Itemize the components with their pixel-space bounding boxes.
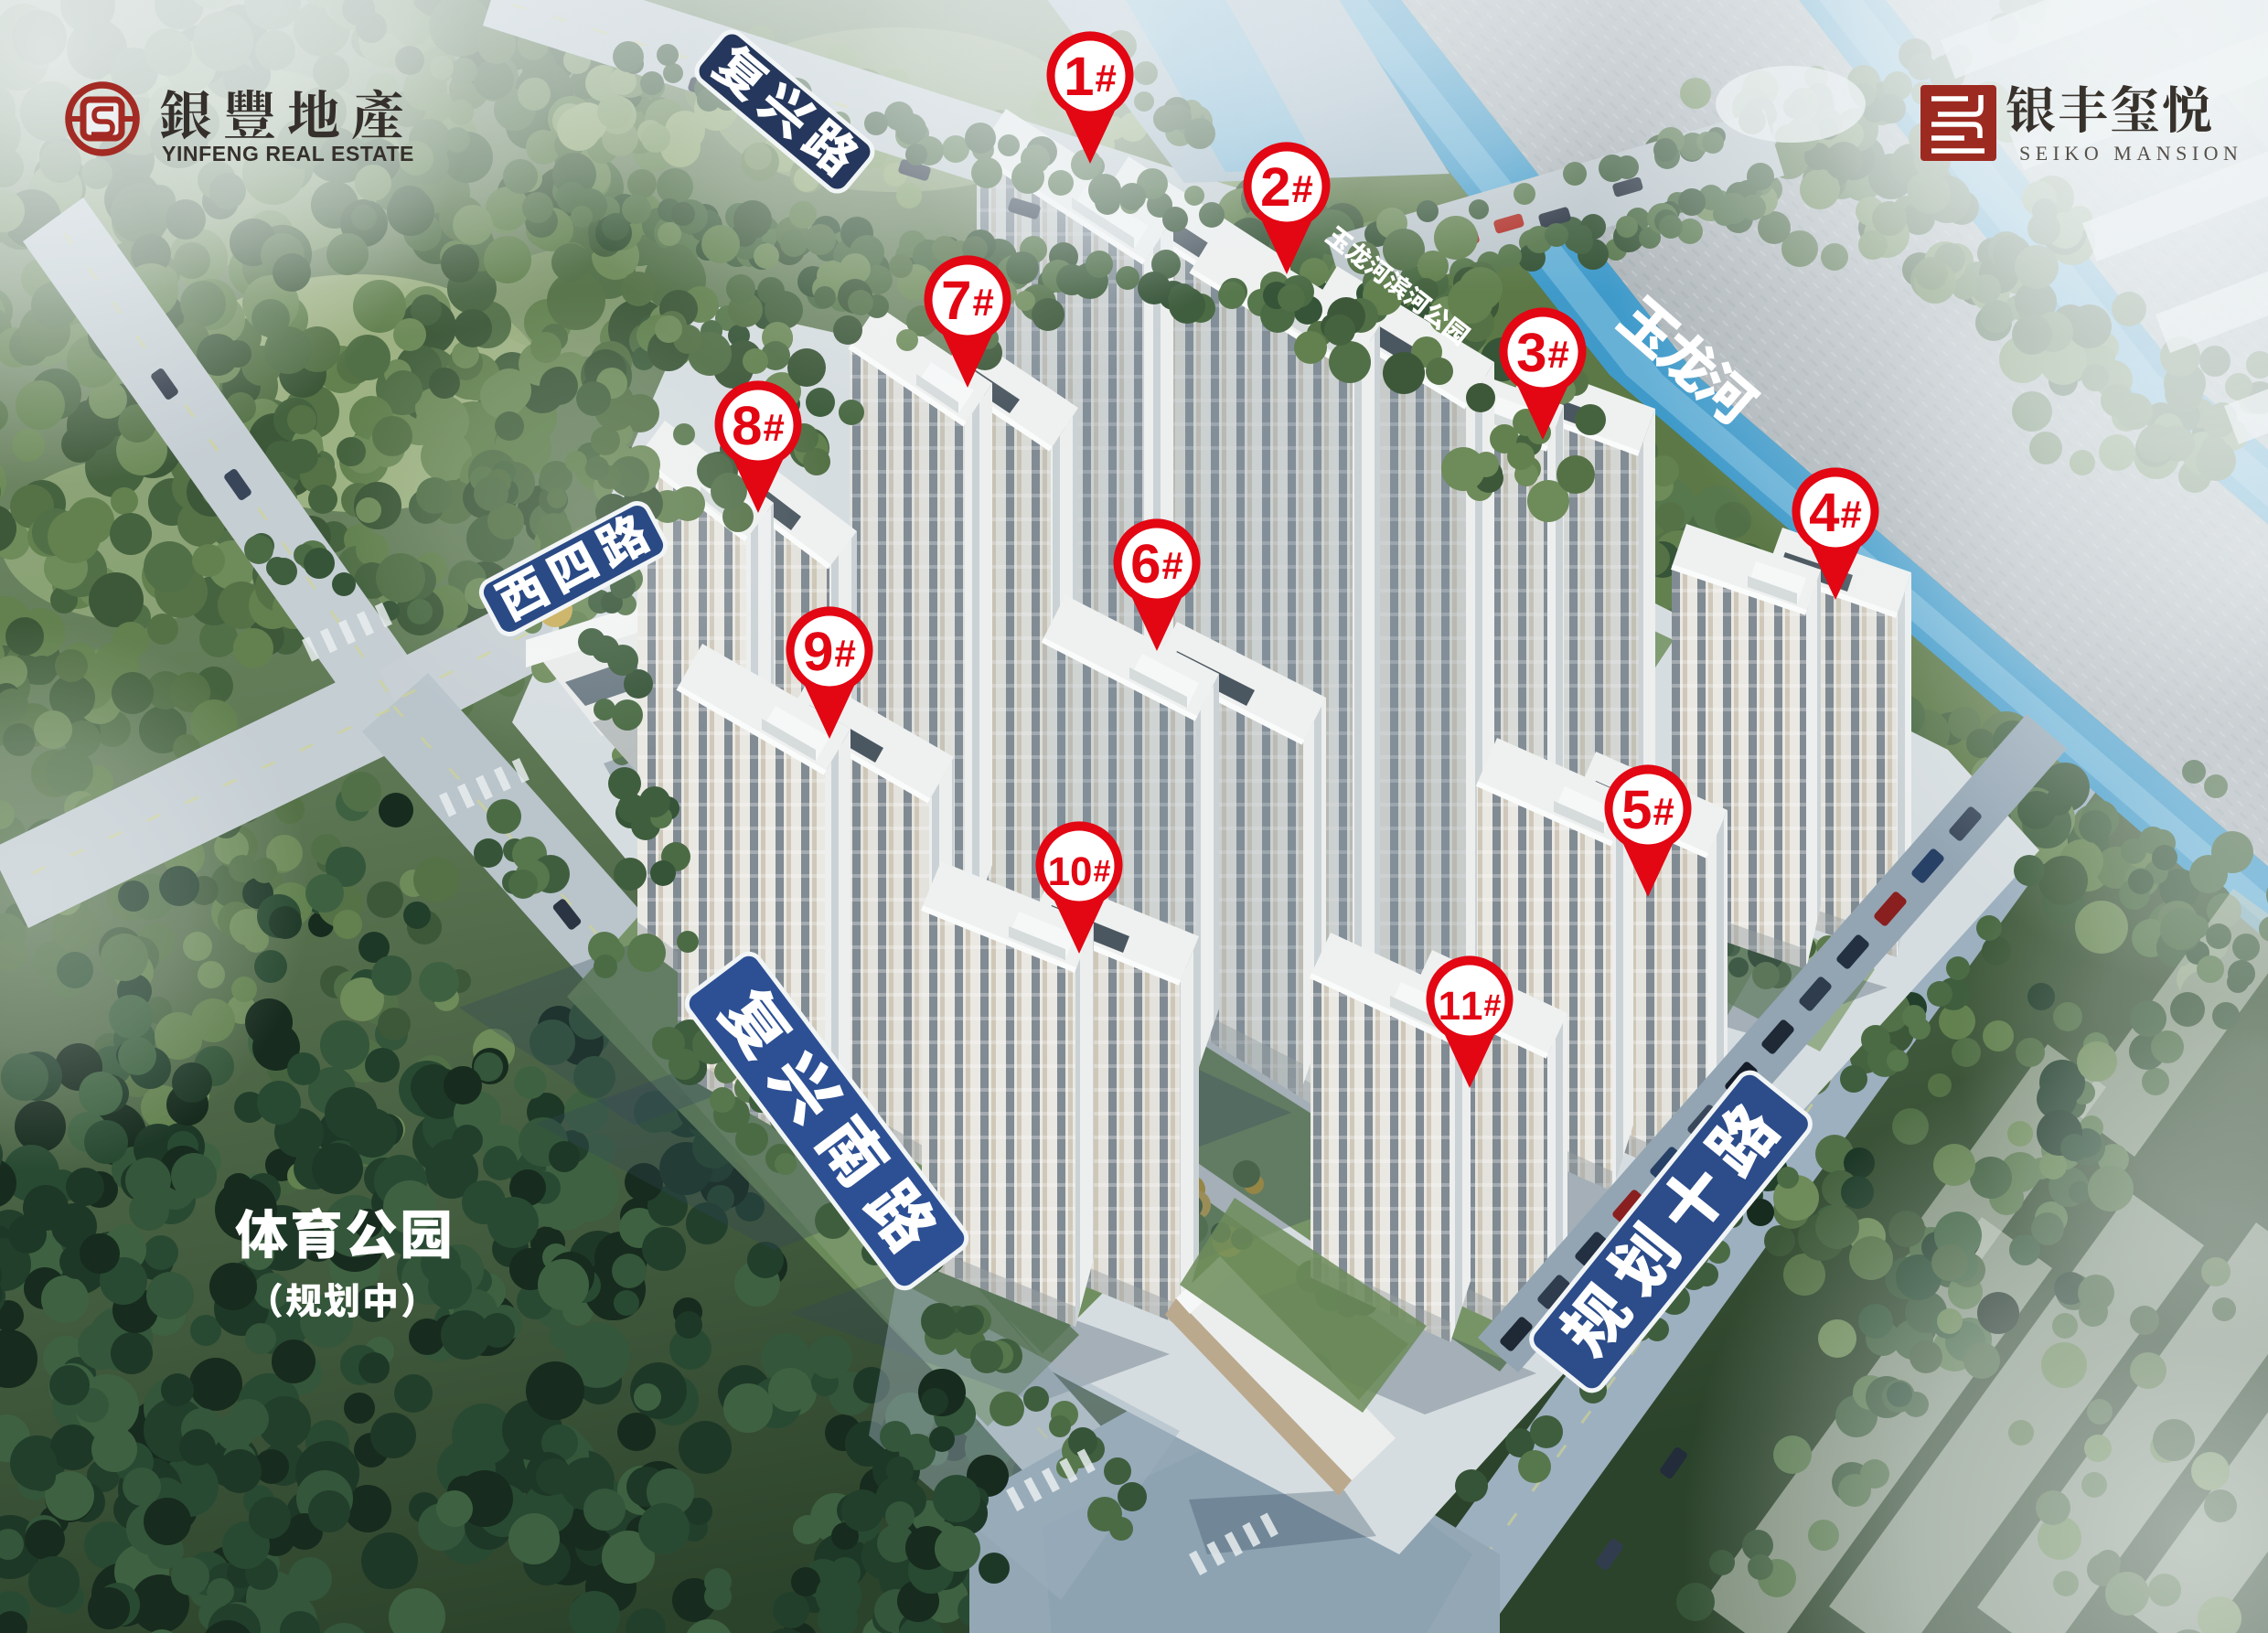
svg-text:YINFENG REAL ESTATE: YINFENG REAL ESTATE — [162, 142, 414, 165]
svg-text:SEIKO MANSION: SEIKO MANSION — [2019, 142, 2242, 165]
